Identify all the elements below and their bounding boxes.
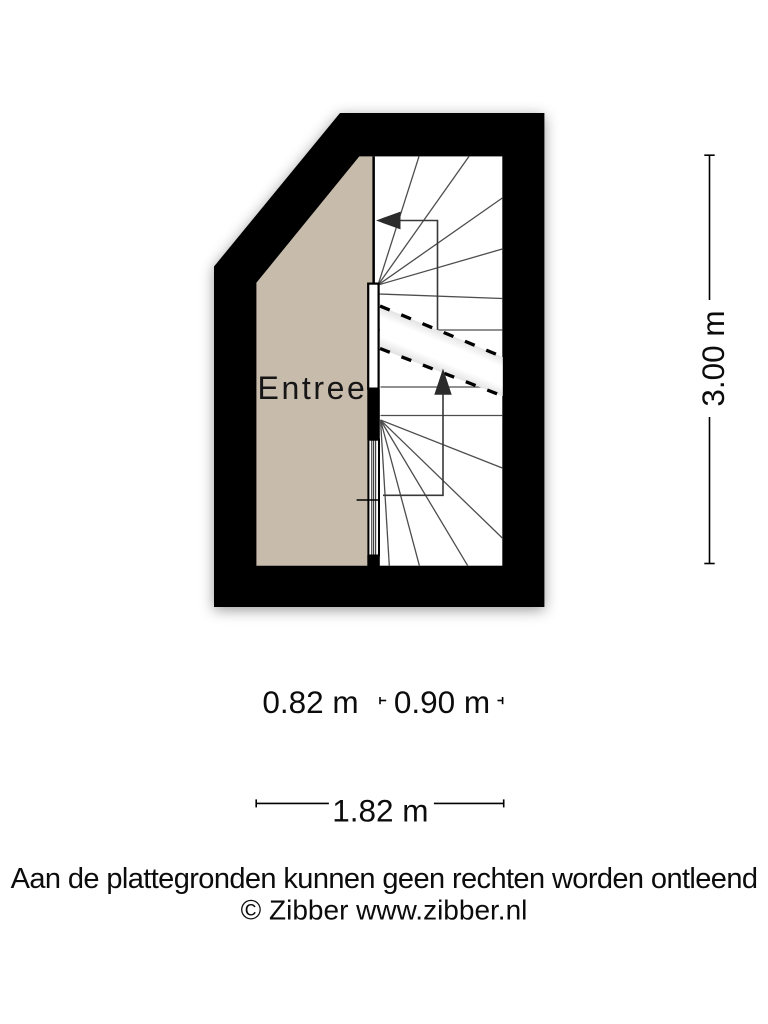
- svg-text:1.82 m: 1.82 m: [332, 793, 428, 829]
- svg-text:© Zibber www.zibber.nl: © Zibber www.zibber.nl: [241, 895, 528, 926]
- svg-text:3.00 m: 3.00 m: [695, 310, 731, 406]
- svg-text:0.90 m: 0.90 m: [394, 684, 490, 720]
- svg-text:0.82 m: 0.82 m: [262, 684, 358, 720]
- svg-text:Aan de plattegronden kunnen ge: Aan de plattegronden kunnen geen rechten…: [11, 863, 758, 895]
- svg-text:Entree: Entree: [258, 370, 368, 406]
